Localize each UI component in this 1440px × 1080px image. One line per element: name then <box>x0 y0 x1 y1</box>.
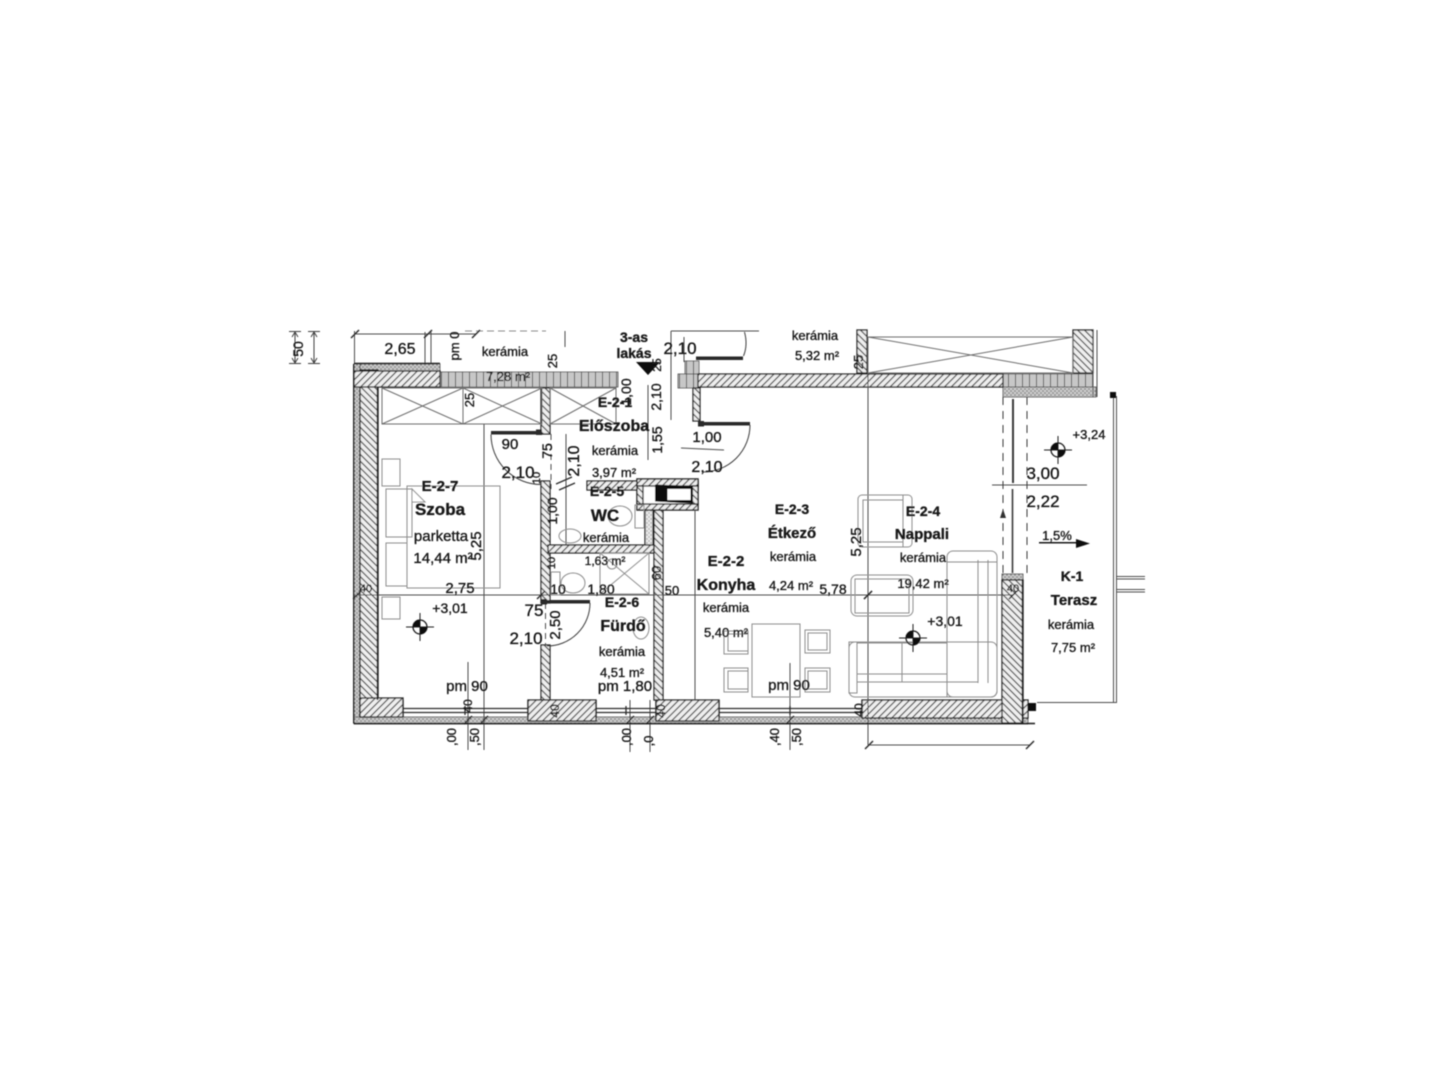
svg-text:2,10: 2,10 <box>663 339 696 358</box>
svg-text:+3,24: +3,24 <box>1073 427 1106 442</box>
svg-text:14,44 m²: 14,44 m² <box>413 550 472 567</box>
svg-text:Fürdő: Fürdő <box>600 618 646 635</box>
svg-text:,50: ,50 <box>467 728 482 746</box>
svg-text:Előszoba: Előszoba <box>579 418 649 435</box>
svg-text:kerámia: kerámia <box>900 550 947 565</box>
svg-text:4,24 m²: 4,24 m² <box>769 578 814 593</box>
svg-text:Szoba: Szoba <box>415 500 466 519</box>
svg-text:pm 90: pm 90 <box>768 677 810 694</box>
svg-text:5,78: 5,78 <box>819 581 846 597</box>
svg-text:kerámia: kerámia <box>792 328 839 343</box>
svg-text:25: 25 <box>545 354 560 368</box>
svg-text:Konyha: Konyha <box>697 577 756 594</box>
svg-text:kerámia: kerámia <box>599 644 646 659</box>
svg-text:Nappali: Nappali <box>895 526 949 543</box>
svg-text:40: 40 <box>852 703 866 717</box>
svg-text:2,10: 2,10 <box>566 445 583 476</box>
svg-text:40: 40 <box>654 704 668 718</box>
svg-text:1,63 m²: 1,63 m² <box>585 554 626 568</box>
svg-text:kerámia: kerámia <box>703 600 750 615</box>
svg-text:40: 40 <box>360 583 372 595</box>
svg-text:2,50: 2,50 <box>547 610 564 639</box>
svg-text:75: 75 <box>525 601 544 620</box>
svg-text:kerámia: kerámia <box>583 530 630 545</box>
svg-text:90: 90 <box>502 436 519 453</box>
svg-text:5,25: 5,25 <box>468 531 485 560</box>
svg-text:E-2-5: E-2-5 <box>590 483 624 499</box>
svg-text:1,00: 1,00 <box>618 378 634 405</box>
svg-text:50: 50 <box>665 583 679 598</box>
svg-text:kerámia: kerámia <box>770 549 817 564</box>
svg-text:19,42 m²: 19,42 m² <box>897 576 949 591</box>
svg-text:25: 25 <box>851 355 866 369</box>
svg-text:10: 10 <box>546 557 558 569</box>
svg-text:,40: ,40 <box>767 728 782 746</box>
svg-text:25: 25 <box>462 393 477 407</box>
svg-text:parketta: parketta <box>414 528 469 545</box>
svg-text:2,65: 2,65 <box>384 341 415 358</box>
svg-text:1,80: 1,80 <box>587 581 614 597</box>
svg-text:1,5%: 1,5% <box>1042 528 1072 543</box>
svg-text:2,10: 2,10 <box>648 383 664 410</box>
svg-text:2,10: 2,10 <box>509 629 542 648</box>
svg-text:3-as: 3-as <box>620 329 648 345</box>
svg-text:2,10: 2,10 <box>691 459 722 476</box>
svg-text:+3,01: +3,01 <box>927 613 963 629</box>
svg-text:1,00: 1,00 <box>692 429 721 446</box>
svg-text:10: 10 <box>531 472 543 484</box>
svg-text:5,40 m²: 5,40 m² <box>704 625 749 640</box>
svg-text:Étkező: Étkező <box>768 525 816 542</box>
svg-text:kerámia: kerámia <box>482 344 529 359</box>
svg-text:2,10: 2,10 <box>501 463 534 482</box>
svg-text:40: 40 <box>461 699 475 713</box>
svg-text:5,25: 5,25 <box>848 527 865 556</box>
svg-text:E-2-4: E-2-4 <box>906 503 940 519</box>
svg-text:pm 0: pm 0 <box>447 332 462 361</box>
svg-text:,00: ,00 <box>619 728 634 746</box>
svg-text:+3,01: +3,01 <box>432 600 468 616</box>
svg-text:,00: ,00 <box>444 728 459 746</box>
svg-text:3,00: 3,00 <box>1026 464 1059 483</box>
svg-text:,50: ,50 <box>789 728 804 746</box>
svg-text:,0: ,0 <box>641 736 656 747</box>
svg-text:kerámia: kerámia <box>592 443 639 458</box>
svg-text:1,00: 1,00 <box>544 497 560 524</box>
svg-text:75: 75 <box>539 443 555 459</box>
svg-text:K-1: K-1 <box>1061 568 1084 584</box>
svg-text:40: 40 <box>548 704 562 718</box>
svg-text:3,97 m²: 3,97 m² <box>592 465 637 480</box>
svg-text:1,55: 1,55 <box>649 426 665 453</box>
svg-text:WC: WC <box>591 506 619 525</box>
svg-text:E-2-3: E-2-3 <box>775 501 809 517</box>
svg-text:60: 60 <box>649 566 664 580</box>
svg-text:pm 90: pm 90 <box>446 678 488 695</box>
svg-text:2,22: 2,22 <box>1026 492 1059 511</box>
svg-text:10: 10 <box>550 581 566 597</box>
svg-text:2,75: 2,75 <box>445 580 474 597</box>
svg-text:E-2-7: E-2-7 <box>422 478 459 495</box>
svg-text:5,32 m²: 5,32 m² <box>795 348 840 363</box>
svg-text:25: 25 <box>650 358 664 372</box>
svg-text:E-2-2: E-2-2 <box>708 553 745 570</box>
svg-text:50: 50 <box>290 341 306 357</box>
svg-text:7,75 m²: 7,75 m² <box>1051 640 1096 655</box>
svg-text:lakás: lakás <box>616 345 651 361</box>
svg-text:Terasz: Terasz <box>1051 592 1097 609</box>
svg-text:40: 40 <box>1007 583 1019 595</box>
svg-text:pm 1,80: pm 1,80 <box>598 678 652 695</box>
svg-text:7,28 m²: 7,28 m² <box>486 369 531 384</box>
svg-text:kerámia: kerámia <box>1048 617 1095 632</box>
